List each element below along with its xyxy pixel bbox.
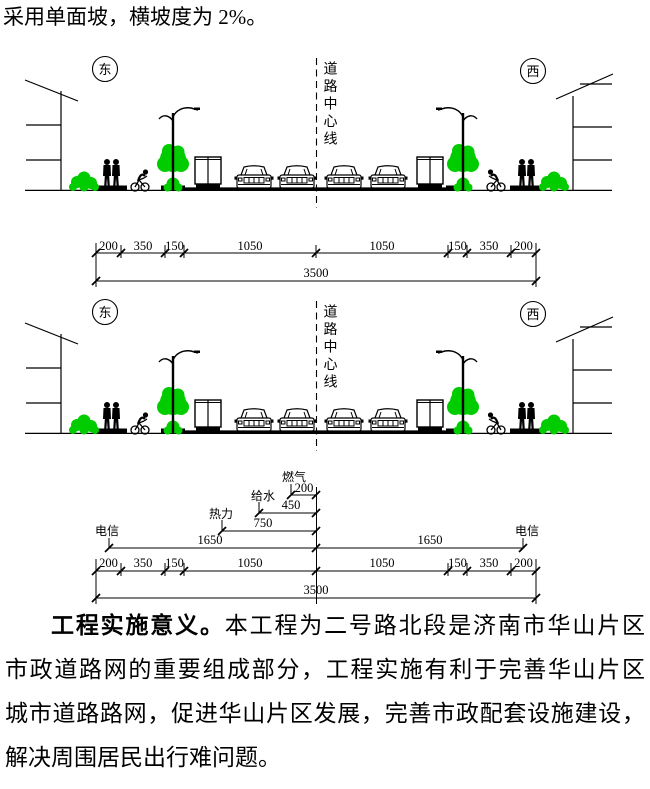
body-paragraph: 工程实施意义。本工程为二号路北段是济南市华山片区 市政道路网的重要组成部分，工程… (5, 604, 645, 780)
dim-value: 150 (448, 556, 467, 570)
cross-section-diagram-1 (25, 57, 613, 209)
dim-value: 200 (514, 556, 533, 570)
dim-value: 1050 (370, 239, 395, 253)
document-page: { "intro": "采用单面坡，横坡度为 2%。", "scene": { … (0, 0, 650, 789)
utility-label-heat: 热力 (209, 507, 233, 521)
utility-dim-telecom-left: 1650 (198, 533, 223, 547)
paragraph-line: 解决周围居民出行难问题。 (5, 736, 645, 780)
dimension-rows-diagram-2: 燃气 200 给水 450 热力 750 电信 1650 电信 1650 200… (92, 469, 540, 604)
dim-value: 350 (134, 556, 153, 570)
dim-value: 350 (480, 239, 499, 253)
cross-section-diagram-2 (25, 300, 613, 452)
utility-label-telecom-left: 电信 (95, 524, 119, 538)
paragraph-lead-bold: 工程实施意义。 (51, 613, 225, 638)
dim-value: 150 (165, 239, 184, 253)
dim-value: 1050 (370, 556, 395, 570)
dim-value: 150 (165, 556, 184, 570)
dim-value: 200 (514, 239, 533, 253)
paragraph-line-text: 本工程为二号路北段是济南市华山片区 (225, 613, 645, 638)
utility-label-water: 给水 (251, 489, 275, 503)
utility-dim-heat: 750 (254, 516, 273, 530)
dim-total: 3500 (304, 266, 329, 280)
paragraph-line: 市政道路网的重要组成部分，工程实施有利于完善华山片区 (5, 648, 645, 692)
utility-dim-water: 450 (282, 498, 301, 512)
dim-value: 350 (134, 239, 153, 253)
dim-value: 200 (99, 556, 118, 570)
dimension-rows-diagram-1: 200 350 150 1050 1050 150 350 200 3500 (92, 239, 540, 287)
utility-dim-telecom-right: 1650 (418, 533, 443, 547)
utility-label-telecom-right: 电信 (515, 524, 539, 538)
utility-dim-gas: 200 (295, 481, 314, 495)
paragraph-line: 城市道路路网，促进华山片区发展，完善市政配套设施建设， (5, 692, 645, 736)
dim-total: 3500 (304, 583, 329, 597)
dim-value: 350 (480, 556, 499, 570)
dim-value: 150 (448, 239, 467, 253)
dim-value: 200 (99, 239, 118, 253)
paragraph-line: 工程实施意义。本工程为二号路北段是济南市华山片区 (5, 604, 645, 648)
dim-value: 1050 (238, 239, 263, 253)
dim-value: 1050 (238, 556, 263, 570)
